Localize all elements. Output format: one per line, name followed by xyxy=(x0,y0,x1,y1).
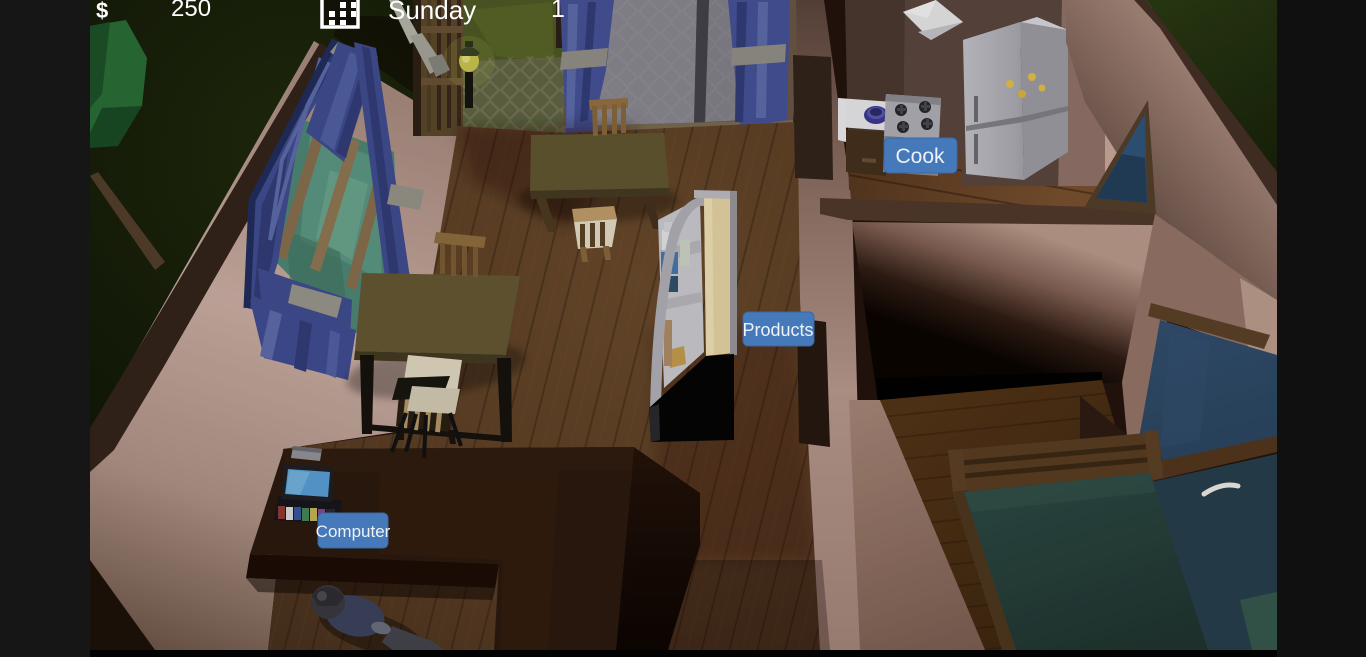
svg-text:Sunday: Sunday xyxy=(388,0,476,25)
svg-text:Computer: Computer xyxy=(316,522,391,541)
svg-text:$: $ xyxy=(96,0,108,23)
svg-text:250: 250 xyxy=(171,0,211,22)
svg-text:1: 1 xyxy=(551,0,565,23)
svg-text:Products: Products xyxy=(742,320,813,340)
svg-text:Cook: Cook xyxy=(895,145,945,168)
